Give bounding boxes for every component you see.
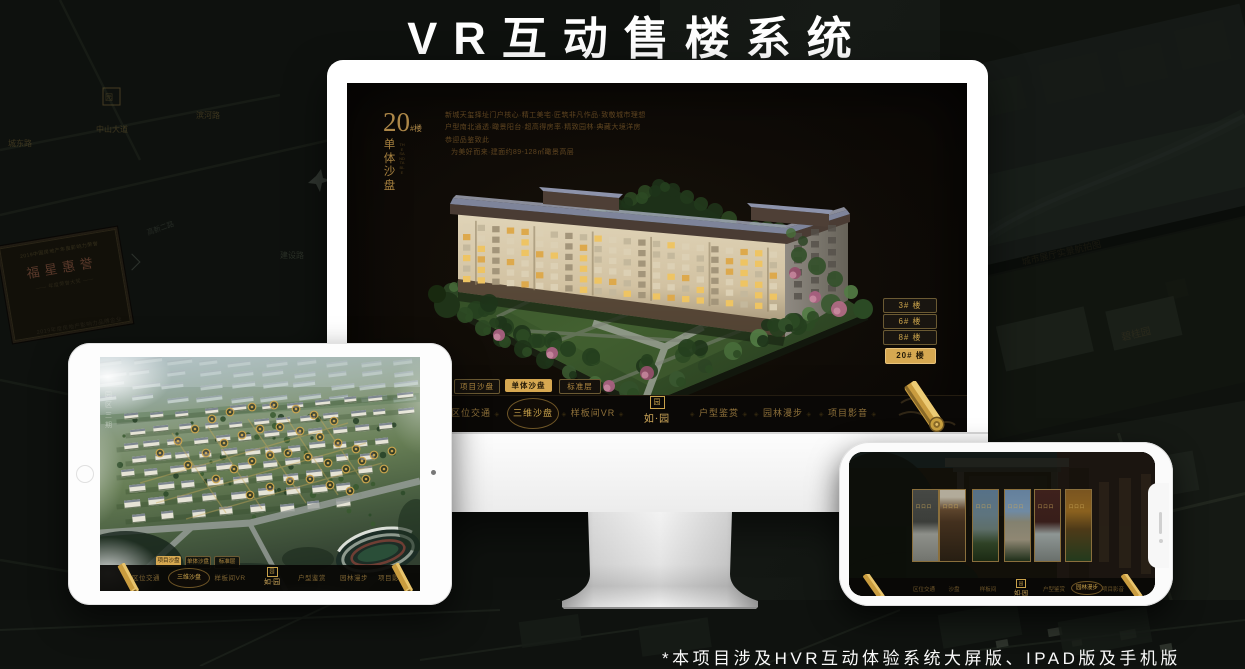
svg-text:园: 园 <box>105 93 113 102</box>
svg-text:中山大道: 中山大道 <box>96 124 128 134</box>
svg-text:建设路: 建设路 <box>280 250 304 260</box>
svg-text:城东路: 城东路 <box>8 138 32 148</box>
svg-text:滨河路: 滨河路 <box>196 110 220 120</box>
